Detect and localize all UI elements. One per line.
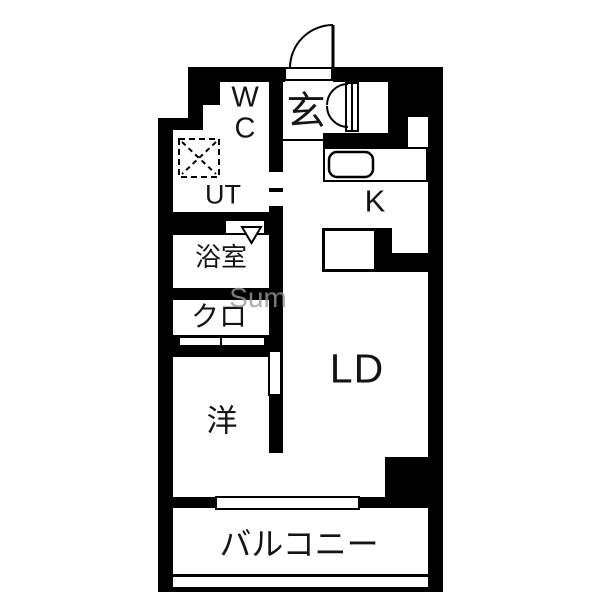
wall-hall-vertical (269, 82, 283, 453)
label-genkan: 玄 (286, 91, 325, 132)
label-wc: W C (231, 82, 258, 143)
wall-below-genkan (323, 133, 388, 147)
label-ld: LD (330, 347, 384, 390)
balcony-window (215, 496, 360, 510)
closet-sliding-door (178, 336, 222, 347)
wall-left-upper (188, 67, 203, 118)
closet-sliding-door (220, 336, 266, 347)
kitchen-block (322, 228, 377, 272)
bath-door-panel (224, 219, 266, 235)
label-balcony: バルコニー (219, 528, 378, 562)
kitchen-counter (323, 147, 428, 182)
wall-topright-mass (388, 82, 428, 117)
label-western: 洋 (207, 406, 238, 439)
wall-right (428, 67, 443, 592)
watermark-text: Sum (229, 282, 287, 314)
ut-door-panel (269, 192, 283, 206)
genkan-step-line (283, 139, 323, 141)
floorplan: W C UT 玄 K 浴室 クロ 洋 LD バルコニー Sum (0, 0, 600, 600)
label-bath: 浴室 (195, 244, 247, 272)
balcony-inner-line (173, 574, 428, 577)
genkan-closet-panel (351, 82, 359, 132)
label-kitchen: K (365, 186, 386, 219)
balcony-outer-line (158, 587, 443, 592)
wall-top-right (333, 67, 443, 82)
wall-kitchen-stub (377, 228, 392, 272)
label-ut: UT (205, 181, 241, 210)
wall-topright-mass (388, 117, 408, 147)
right-wall-niche (408, 117, 428, 147)
wall-left (158, 118, 173, 592)
entrance-door-icon (290, 25, 333, 68)
entrance-threshold (284, 67, 333, 81)
wall-wc-pillar (203, 82, 220, 105)
western-room-door-panel (268, 350, 282, 396)
wall-kitchen-band (392, 253, 428, 272)
washing-machine-icon (179, 139, 219, 177)
ut-door-panel (269, 172, 283, 188)
